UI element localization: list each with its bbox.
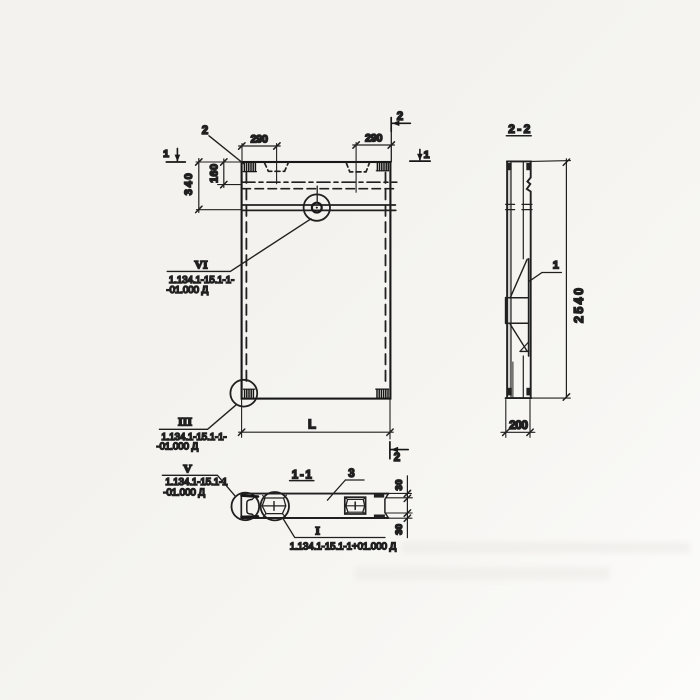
svg-text:VI: VI [194,258,208,272]
svg-text:III: III [178,415,192,429]
svg-text:-01.000 Д: -01.000 Д [163,488,205,499]
svg-text:1: 1 [553,260,559,272]
svg-text:3: 3 [348,468,354,480]
svg-text:V: V [183,461,192,475]
svg-text:2: 2 [202,125,208,137]
svg-text:-01.000 Д: -01.000 Д [156,442,198,453]
svg-text:1.134.1-15.1-1+01.000 Д: 1.134.1-15.1-1+01.000 Д [290,542,397,553]
svg-text:290: 290 [250,134,268,146]
svg-text:2: 2 [397,111,403,123]
svg-text:1-1: 1-1 [292,470,313,482]
svg-text:200: 200 [509,418,528,432]
svg-text:30: 30 [394,524,405,535]
svg-text:160: 160 [208,164,220,183]
svg-text:1: 1 [163,148,169,160]
svg-text:1: 1 [424,149,430,161]
svg-text:340: 340 [183,173,195,195]
svg-text:-01.000 Д: -01.000 Д [166,285,208,296]
svg-text:2540: 2540 [572,288,586,323]
svg-text:290: 290 [365,133,383,145]
svg-text:30: 30 [394,480,405,491]
svg-text:2: 2 [394,452,400,464]
svg-text:I: I [315,523,320,537]
svg-text:2-2: 2-2 [508,122,530,136]
svg-text:L: L [308,417,316,432]
svg-text:1.134.1-15.1-1: 1.134.1-15.1-1 [165,477,228,488]
